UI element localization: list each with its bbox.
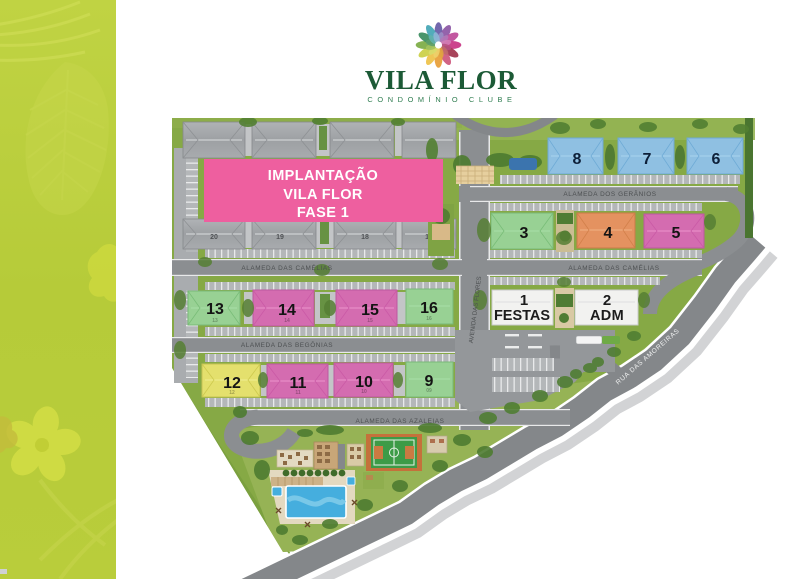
svg-text:5: 5 (672, 225, 681, 242)
svg-text:VILA FLOR: VILA FLOR (365, 65, 517, 95)
svg-text:ALAMEDA DAS CAMÉLIAS: ALAMEDA DAS CAMÉLIAS (241, 263, 332, 272)
svg-text:6: 6 (712, 151, 721, 168)
svg-text:ALAMEDA DOS GERÂNIOS: ALAMEDA DOS GERÂNIOS (563, 189, 656, 198)
svg-text:ALAMEDA DAS CAMÉLIAS: ALAMEDA DAS CAMÉLIAS (568, 263, 659, 272)
svg-text:IMPLANTAÇÃO: IMPLANTAÇÃO (268, 166, 378, 184)
svg-text:16: 16 (426, 316, 432, 322)
svg-text:10: 10 (361, 389, 367, 395)
svg-text:19: 19 (276, 234, 284, 241)
svg-text:11: 11 (295, 390, 301, 396)
svg-text:20: 20 (210, 234, 218, 241)
svg-text:ALAMEDA DAS AZALEIAS: ALAMEDA DAS AZALEIAS (355, 418, 444, 425)
svg-text:14: 14 (278, 302, 296, 319)
svg-text:ALAMEDA DAS BEGÔNIAS: ALAMEDA DAS BEGÔNIAS (241, 340, 333, 349)
svg-text:13: 13 (212, 318, 218, 324)
svg-text:16: 16 (420, 300, 438, 317)
svg-text:CONDOMÍNIO CLUBE: CONDOMÍNIO CLUBE (367, 95, 516, 104)
svg-text:15: 15 (361, 302, 379, 319)
svg-text:13: 13 (206, 301, 224, 318)
svg-text:12: 12 (229, 390, 235, 396)
svg-text:2: 2 (603, 292, 611, 309)
svg-text:FESTAS: FESTAS (494, 308, 550, 324)
svg-text:1: 1 (520, 292, 528, 309)
svg-text:14: 14 (284, 318, 290, 324)
svg-text:7: 7 (643, 151, 652, 168)
svg-text:FASE 1: FASE 1 (297, 205, 349, 221)
svg-text:VILA FLOR: VILA FLOR (283, 187, 363, 203)
svg-text:ADM: ADM (590, 308, 624, 324)
svg-text:18: 18 (361, 234, 369, 241)
svg-text:15: 15 (367, 318, 373, 324)
svg-text:4: 4 (604, 225, 613, 242)
svg-text:09: 09 (426, 388, 432, 394)
svg-text:8: 8 (573, 151, 582, 168)
svg-text:3: 3 (520, 225, 529, 242)
